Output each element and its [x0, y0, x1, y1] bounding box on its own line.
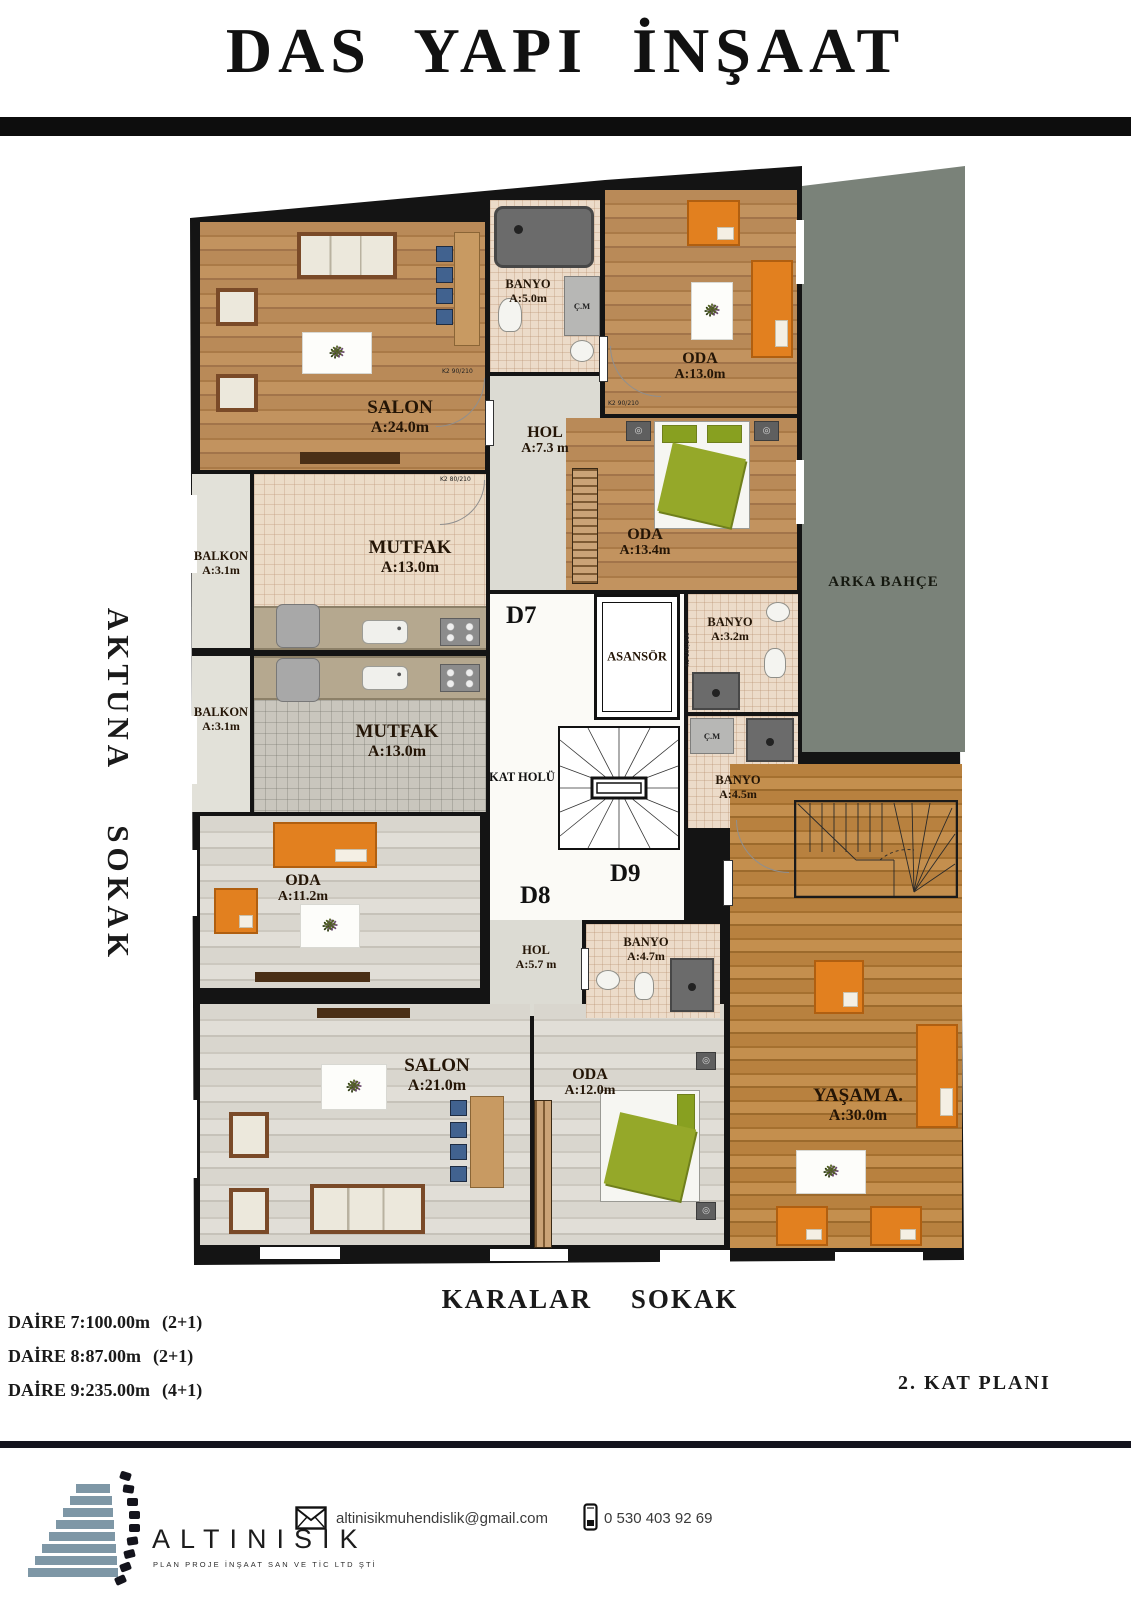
sofa — [310, 1184, 425, 1234]
apartment-list: DAİRE 7:100.00m(2+1) DAİRE 8:87.00m(2+1)… — [8, 1312, 202, 1414]
unit-label-d8: D8 — [520, 882, 551, 910]
room-label: HOL A:7.3 m — [490, 424, 600, 456]
back-garden: ARKA BAHÇE — [802, 166, 965, 752]
orange-armchair — [870, 1206, 922, 1246]
orange-niche — [814, 960, 864, 1014]
footer-divider-bar — [0, 1441, 1131, 1448]
toilet — [764, 648, 786, 678]
apartment-line: DAİRE 9:235.00m(4+1) — [8, 1380, 202, 1401]
closet-cm: Ç.M — [690, 718, 734, 754]
kitchen-sink — [362, 620, 408, 644]
garden-label: ARKA BAHÇE — [802, 574, 965, 591]
chair — [450, 1166, 467, 1182]
logo-dash — [122, 1484, 134, 1493]
room-label: HOL A:5.7 m — [490, 944, 582, 970]
window — [796, 460, 804, 524]
chair — [436, 267, 453, 283]
room-balkon-lower: BALKON A:3.1m — [192, 656, 250, 812]
landing-label: KAT HOLÜ — [489, 770, 555, 785]
company-tagline: PLAN PROJE İNŞAAT SAN VE TİC LTD ŞTİ — [153, 1560, 377, 1569]
logo-mark-bar — [70, 1496, 112, 1505]
elevator: ASANSÖR — [594, 594, 680, 720]
chair — [436, 309, 453, 325]
room-hol-57: HOL A:5.7 m — [490, 920, 582, 1016]
window — [190, 1100, 197, 1178]
room-oda-12: ODA A:12.0m — [534, 1004, 724, 1245]
logo-dash — [127, 1498, 138, 1506]
room-label: ODA A:11.2m — [228, 872, 378, 904]
unit-label-d7: D7 — [506, 602, 537, 630]
mobile-phone-icon — [583, 1503, 598, 1531]
email-address: altinisikmuhendislik@gmail.com — [336, 1510, 548, 1527]
kitchen-sink — [362, 666, 408, 690]
door-leaf — [599, 336, 608, 382]
logo-mark-bar — [49, 1532, 115, 1541]
floor-plan: ARKA BAHÇE SALON A:24.0m Ç.M BANYO A:5.0… — [190, 160, 965, 1265]
bed — [600, 1090, 700, 1202]
nightstand — [696, 1202, 716, 1220]
room-label: SALON A:21.0m — [377, 1056, 497, 1094]
chair — [450, 1144, 467, 1160]
dining-table — [470, 1096, 504, 1188]
window — [490, 1249, 568, 1261]
shower — [692, 672, 740, 710]
window — [190, 850, 197, 916]
door-size-tag: K2 80/210 — [440, 476, 471, 483]
room-label: BALKON A:3.1m — [188, 550, 254, 576]
rug — [691, 282, 733, 340]
logo-dash — [129, 1524, 140, 1532]
door-leaf — [723, 860, 733, 906]
stove — [440, 618, 480, 646]
chair — [436, 246, 453, 262]
logo-dash — [123, 1549, 136, 1559]
orange-daybed — [273, 822, 377, 868]
room-label: BALKON A:3.1m — [188, 706, 254, 732]
orange-niche — [751, 260, 793, 358]
street-label-aktuna: AKTUNA SOKAK — [100, 608, 136, 962]
logo-mark-bar — [63, 1508, 113, 1517]
room-mutfak-lower: MUTFAK A:13.0m — [254, 656, 486, 812]
nightstand — [626, 421, 651, 441]
bathtub — [494, 206, 594, 268]
stove — [440, 664, 480, 692]
shower — [746, 718, 794, 762]
tv-unit — [300, 452, 400, 464]
door-size-tag: K2 90/210 — [608, 400, 639, 407]
sink — [596, 970, 620, 990]
room-balkon-upper: BALKON A:3.1m — [192, 474, 250, 648]
company-name: ALTINISIK — [152, 1524, 368, 1555]
logo-mark-bar — [28, 1568, 118, 1577]
stair-fan-icon — [558, 726, 680, 850]
fridge — [276, 658, 320, 702]
chair — [450, 1100, 467, 1116]
room-label: MUTFAK A:13.0m — [301, 722, 493, 760]
console-table — [454, 232, 480, 346]
sofa — [297, 232, 397, 279]
room-label: MUTFAK A:13.0m — [314, 538, 506, 576]
bed — [654, 421, 750, 529]
room-label: ODA A:12.0m — [534, 1066, 646, 1098]
room-oda-112: ODA A:11.2m — [200, 816, 480, 988]
logo-dash — [119, 1561, 132, 1572]
stairwell — [558, 726, 680, 850]
apartment-line: DAİRE 8:87.00m(2+1) — [8, 1346, 202, 1367]
logo-mark-bar — [76, 1484, 110, 1493]
rug — [302, 332, 372, 374]
desk — [255, 972, 370, 982]
logo-dash — [126, 1536, 138, 1545]
room-banyo-32: BANYO A:3.2m — [688, 594, 798, 712]
room-oda-134: ODA A:13.4m — [566, 418, 797, 590]
rug — [796, 1150, 866, 1194]
toilet — [634, 972, 654, 1000]
room-banyo-5: Ç.M BANYO A:5.0m — [490, 200, 600, 372]
room-label: SALON A:24.0m — [315, 398, 485, 436]
floor-plan-title: 2. KAT PLANI — [898, 1372, 1051, 1395]
nightstand — [754, 421, 779, 441]
elevator-label: ASANSÖR — [597, 650, 677, 664]
nightstand — [696, 1052, 716, 1070]
room-label: YAŞAM A. A:30.0m — [768, 1086, 948, 1124]
room-salon-24: SALON A:24.0m — [200, 222, 485, 470]
logo-mark-bar — [35, 1556, 117, 1565]
apartment-line: DAİRE 7:100.00m(2+1) — [8, 1312, 202, 1333]
page-title: DAS YAPI İNŞAAT — [0, 14, 1131, 88]
logo-dash — [119, 1470, 132, 1481]
wardrobe — [534, 1100, 552, 1248]
room-label: ODA A:13.0m — [625, 350, 775, 382]
armchair — [216, 288, 258, 326]
armchair — [216, 374, 258, 412]
armchair — [229, 1112, 269, 1158]
orange-niche — [687, 200, 740, 246]
window — [835, 1252, 923, 1264]
title-divider-bar — [0, 117, 1131, 136]
window — [660, 1250, 730, 1262]
orange-armchair — [776, 1206, 828, 1246]
room-oda-13: ODA A:13.0m — [605, 190, 797, 414]
sink — [570, 340, 594, 362]
logo-dash — [129, 1511, 140, 1519]
room-label: BANYO A:3.2m — [680, 616, 780, 642]
stair-steps-icon — [794, 800, 958, 898]
room-label: BANYO A:4.7m — [586, 936, 706, 962]
window — [796, 220, 804, 284]
fridge — [276, 604, 320, 648]
phone-number: 0 530 403 92 69 — [604, 1510, 712, 1527]
shower — [670, 958, 714, 1012]
logo-mark-bar — [56, 1520, 114, 1529]
street-label-karalar: KARALAR SOKAK — [330, 1284, 850, 1315]
room-label: BANYO A:4.5m — [688, 774, 788, 800]
door-size-tag: K2 90/210 — [442, 368, 473, 375]
room-banyo-47: BANYO A:4.7m — [586, 924, 720, 1018]
room-label: ODA A:13.4m — [590, 526, 700, 558]
armchair — [229, 1188, 269, 1234]
unit-label-d9: D9 — [610, 860, 641, 888]
window — [260, 1247, 340, 1259]
chair — [436, 288, 453, 304]
room-salon-21: SALON A:21.0m — [200, 1004, 530, 1245]
logo-mark-bar — [42, 1544, 116, 1553]
chair — [450, 1122, 467, 1138]
room-label: BANYO A:5.0m — [484, 278, 572, 304]
sideboard — [317, 1008, 410, 1018]
door-size-tag: K1 100/210 — [684, 632, 691, 667]
envelope-icon — [295, 1506, 327, 1530]
rug — [300, 904, 360, 948]
